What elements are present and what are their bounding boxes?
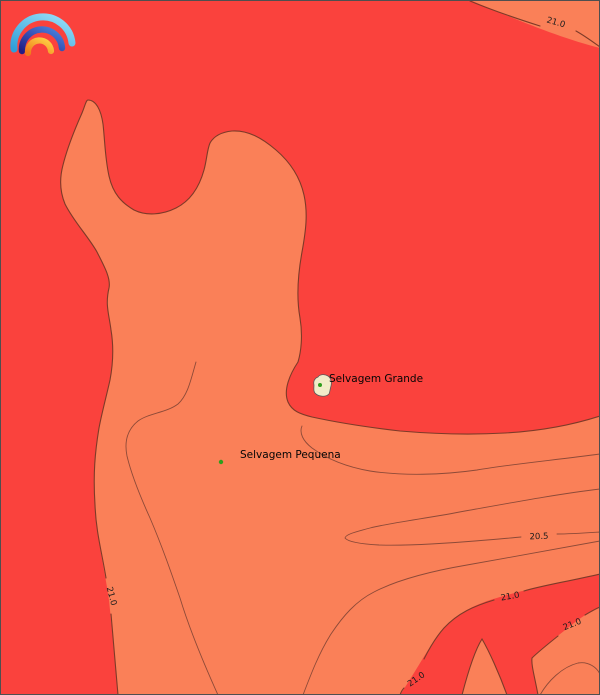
contour-map[interactable]: 21.0 21.0 20.5 21.0 21.0 21.0 Selvagem G… — [0, 0, 600, 695]
map-canvas[interactable]: 21.0 21.0 20.5 21.0 21.0 21.0 Selvagem G… — [0, 0, 600, 695]
island-marker-selvagem-pequena — [219, 460, 223, 464]
island-marker-selvagem-grande — [318, 383, 322, 387]
contour-label-mid-right: 20.5 — [529, 532, 548, 543]
island-label-selvagem-grande: Selvagem Grande — [329, 373, 423, 385]
island-label-selvagem-pequena: Selvagem Pequena — [240, 449, 341, 461]
